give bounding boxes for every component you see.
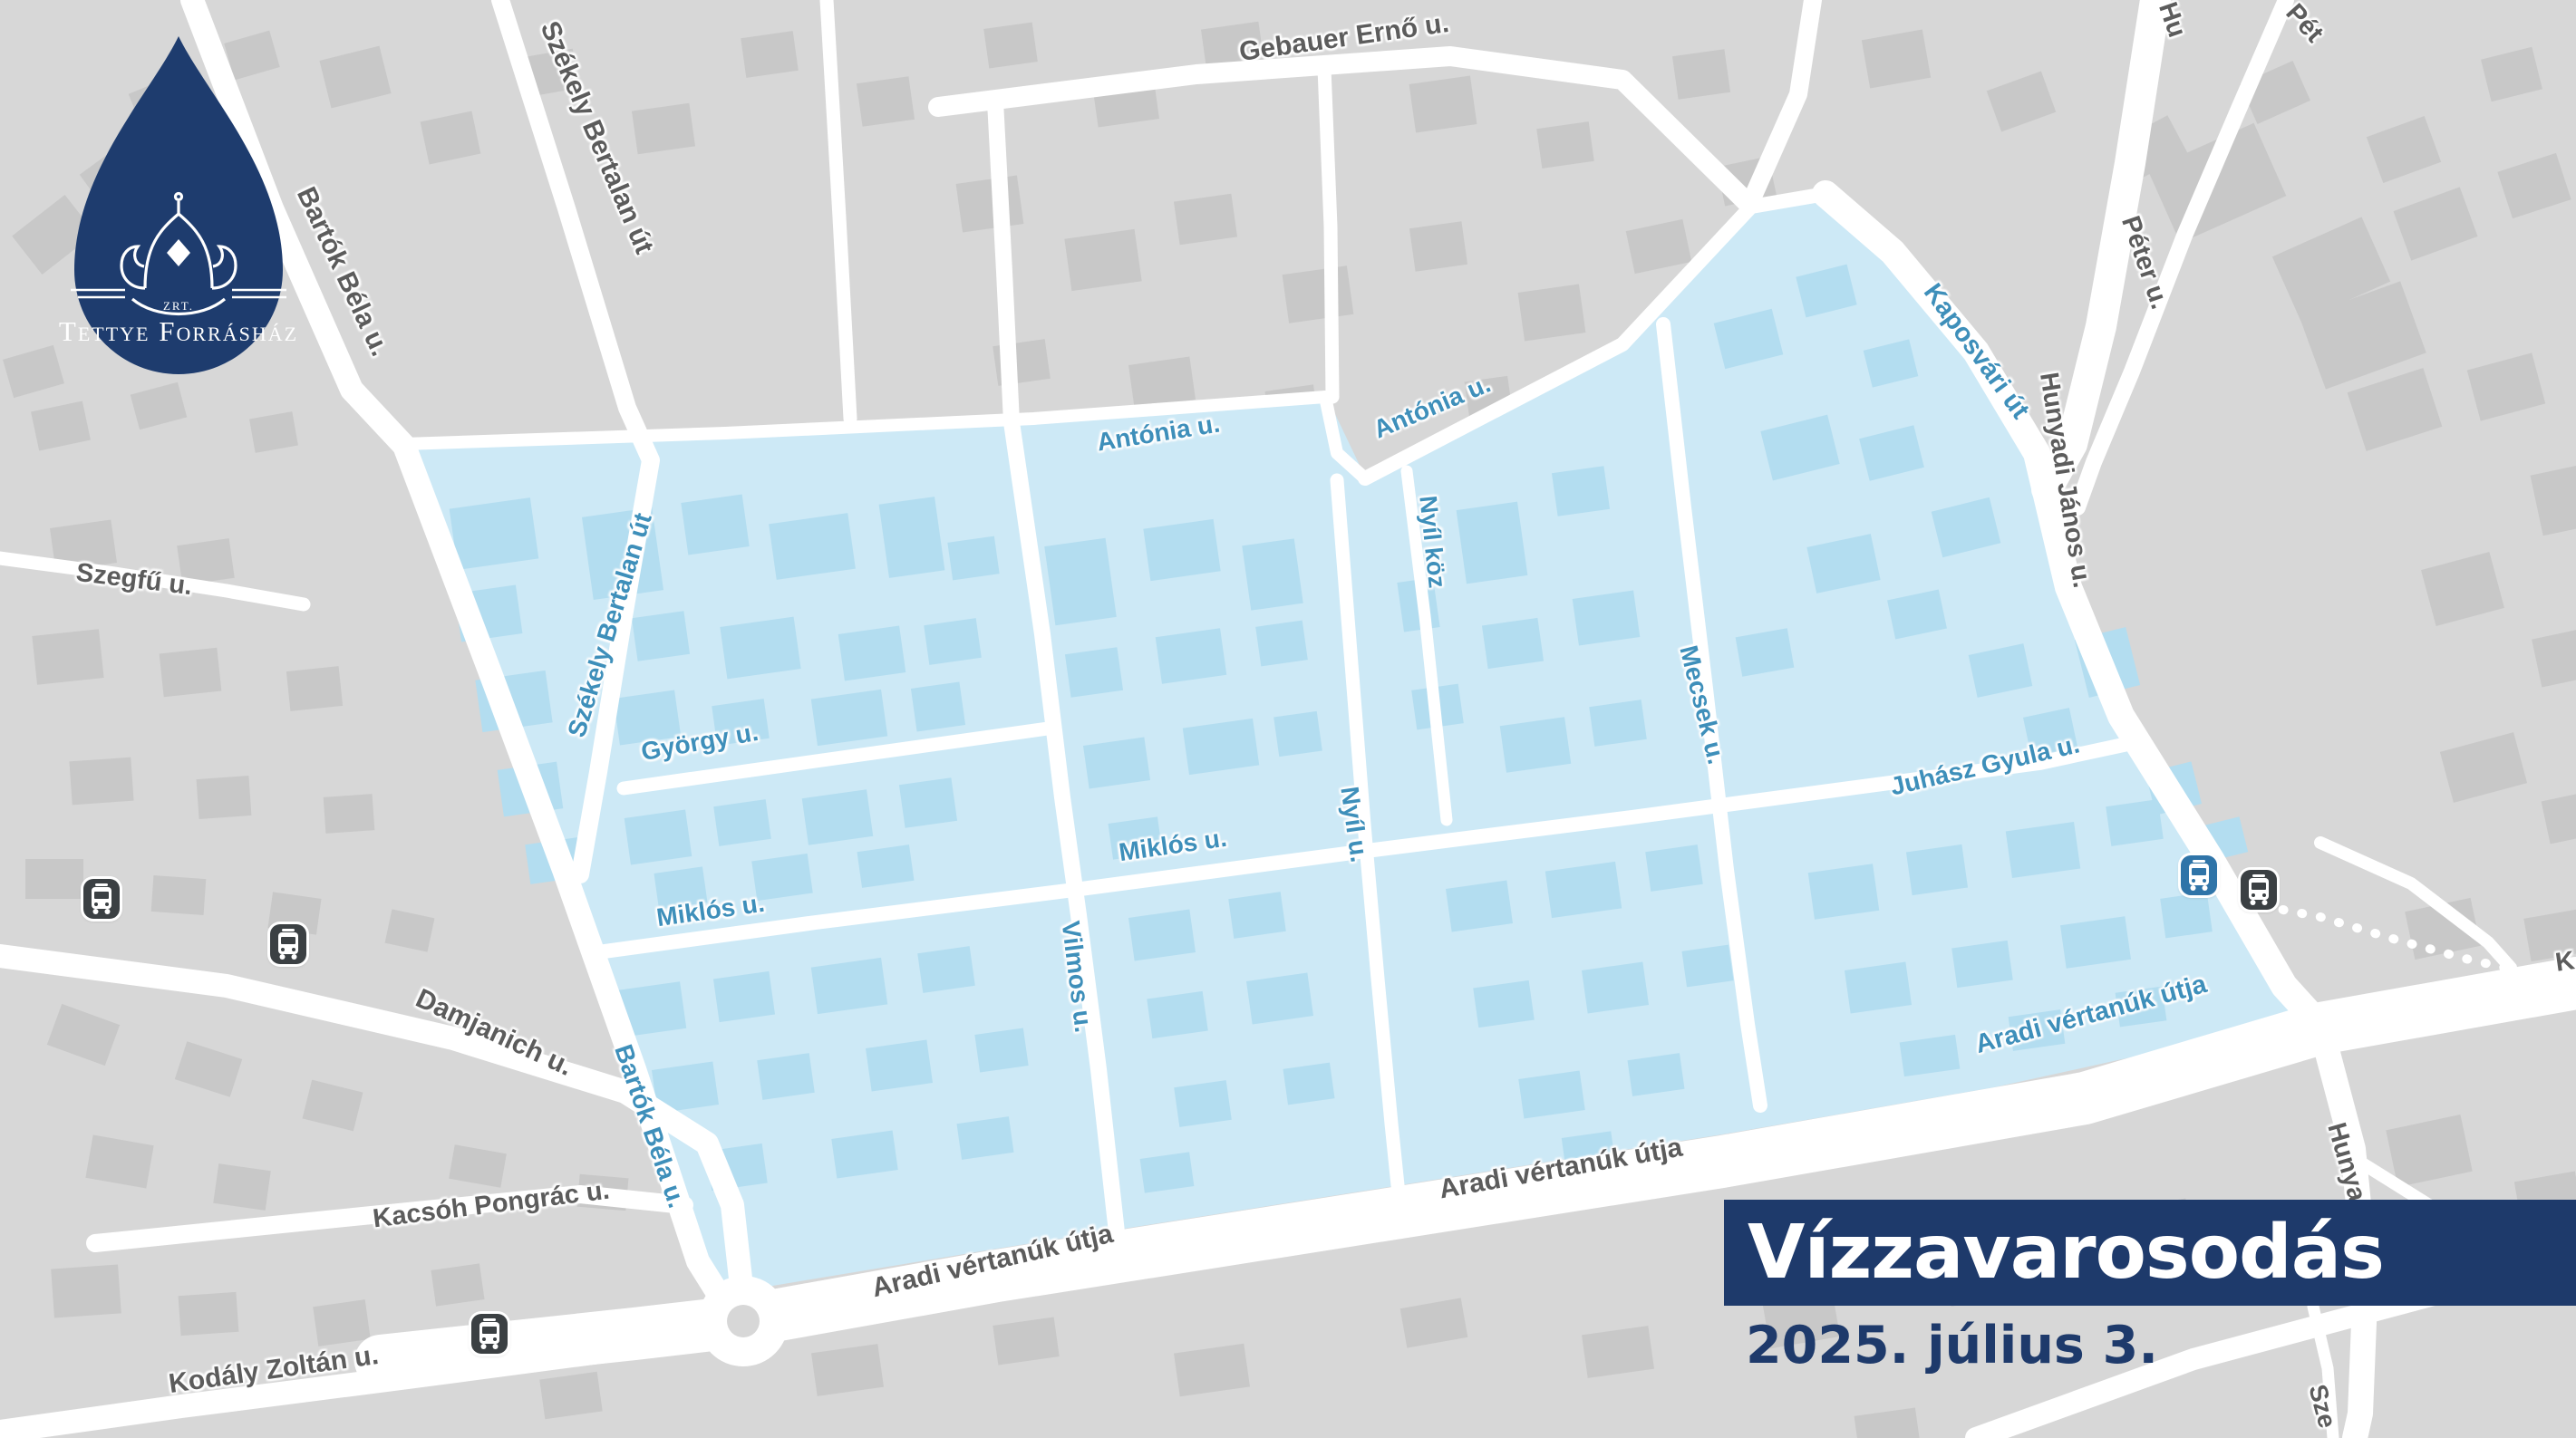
building	[1545, 862, 1622, 918]
building	[160, 648, 222, 697]
building	[319, 46, 391, 109]
building	[1400, 1298, 1468, 1347]
building	[450, 497, 539, 570]
building	[2421, 552, 2504, 626]
building	[1065, 647, 1123, 698]
building	[1064, 229, 1141, 291]
building	[625, 810, 692, 865]
building	[911, 681, 965, 731]
building	[1552, 466, 1610, 516]
building	[1457, 502, 1528, 584]
bus-stop-icon	[2181, 855, 2217, 895]
building	[1083, 738, 1150, 789]
building	[1573, 591, 1641, 646]
building	[2481, 47, 2542, 102]
bus-glyph	[471, 1314, 508, 1354]
building	[1174, 1080, 1232, 1127]
building	[175, 1041, 242, 1097]
building	[1482, 618, 1544, 669]
building	[857, 844, 914, 888]
building	[1951, 941, 2013, 988]
notice-date: 2025. július 3.	[1746, 1316, 2158, 1375]
building	[2348, 368, 2443, 451]
road	[938, 56, 1749, 205]
building	[811, 1344, 884, 1396]
building	[1626, 219, 1692, 274]
building	[1228, 892, 1286, 939]
street-label: K	[2553, 946, 2576, 979]
building	[2393, 187, 2477, 260]
notice-title: Vízzavarosodás	[1724, 1216, 2384, 1290]
building	[2160, 893, 2213, 939]
building	[1518, 1070, 1584, 1118]
building	[179, 1292, 239, 1336]
bus-stop-icon	[2241, 870, 2277, 910]
building	[1283, 265, 1354, 323]
building	[1246, 973, 1313, 1025]
building	[974, 1028, 1028, 1072]
building	[1582, 1326, 1654, 1378]
building	[2440, 732, 2527, 803]
building	[838, 626, 906, 681]
building	[1183, 719, 1259, 775]
building	[1143, 519, 1220, 581]
building	[25, 859, 83, 899]
building	[69, 758, 133, 806]
building	[741, 31, 799, 78]
building	[2006, 822, 2080, 878]
building	[811, 958, 887, 1014]
building	[713, 971, 775, 1022]
building	[1044, 538, 1117, 626]
building	[713, 799, 771, 846]
logo-zrt-label: ZRT.	[47, 299, 310, 314]
building	[632, 611, 690, 661]
building	[2367, 116, 2441, 183]
bus-glyph	[2181, 855, 2217, 895]
building	[1500, 717, 1572, 773]
building	[924, 618, 982, 665]
building	[2386, 1115, 2472, 1187]
bus-stop-icon	[83, 879, 120, 919]
building	[769, 513, 856, 580]
building	[1273, 711, 1322, 757]
building	[324, 794, 375, 834]
building	[1589, 700, 1647, 747]
building	[899, 777, 957, 828]
building	[993, 1317, 1059, 1365]
building	[831, 1130, 897, 1178]
building	[313, 1299, 371, 1346]
building	[857, 76, 915, 127]
building	[431, 1263, 484, 1306]
building	[1409, 76, 1477, 133]
building	[1845, 962, 1912, 1014]
road	[1324, 68, 1332, 397]
building	[632, 103, 695, 154]
building	[2531, 465, 2576, 536]
building	[2060, 916, 2131, 969]
building	[1473, 980, 1535, 1028]
building	[2532, 627, 2576, 688]
bus-stop-icon	[471, 1314, 508, 1354]
building	[879, 497, 945, 578]
building	[1906, 844, 1968, 895]
bus-glyph	[83, 879, 120, 919]
building	[303, 1080, 363, 1132]
building	[385, 909, 435, 951]
building	[956, 1116, 1013, 1160]
building	[421, 111, 481, 164]
road	[827, 0, 850, 419]
building	[449, 1144, 507, 1187]
building	[1536, 121, 1594, 169]
building	[2497, 153, 2571, 218]
building	[1174, 194, 1237, 245]
building	[85, 1134, 153, 1188]
building	[956, 176, 1024, 233]
building	[213, 1163, 271, 1211]
building	[47, 1004, 120, 1066]
building	[1128, 357, 1196, 409]
building	[1808, 864, 1880, 920]
building	[1627, 1053, 1684, 1096]
building	[1156, 628, 1227, 684]
building	[1645, 844, 1703, 892]
building	[1174, 1344, 1250, 1396]
building	[1128, 910, 1196, 961]
building	[1987, 72, 2057, 132]
building	[757, 1053, 815, 1100]
building	[1582, 962, 1649, 1014]
bus-stop-icon	[270, 924, 306, 964]
building	[1255, 621, 1308, 667]
notice-banner: Vízzavarosodás	[1724, 1200, 2576, 1306]
bus-glyph	[270, 924, 306, 964]
building	[51, 1264, 121, 1317]
building	[1446, 881, 1513, 932]
building	[539, 1372, 603, 1419]
roundabout-island	[727, 1305, 760, 1337]
building	[32, 629, 103, 684]
building	[1147, 991, 1208, 1038]
building	[1862, 30, 1931, 89]
building	[811, 690, 887, 746]
building	[1681, 945, 1733, 988]
company-logo	[47, 27, 310, 412]
building	[1518, 285, 1586, 342]
building	[197, 776, 252, 819]
road	[1749, 0, 1813, 205]
building	[681, 495, 749, 555]
building	[917, 946, 975, 993]
building	[802, 789, 874, 845]
building	[1283, 1063, 1334, 1105]
building	[866, 1040, 933, 1092]
building	[151, 875, 207, 915]
logo-company-name: Tettye Forrásház	[47, 315, 310, 348]
building	[983, 22, 1038, 68]
building	[1855, 1407, 1921, 1438]
bus-glyph	[2241, 870, 2277, 910]
building	[286, 666, 343, 711]
building	[947, 536, 999, 581]
map-poster: Gebauer Ernő u.Székely Bertalan útBartók…	[0, 0, 2576, 1438]
building	[720, 617, 800, 680]
building	[1672, 49, 1730, 100]
building	[1140, 1152, 1195, 1192]
building	[2467, 352, 2545, 420]
building	[249, 411, 298, 453]
building	[2542, 790, 2576, 844]
building	[1409, 221, 1467, 272]
building	[1242, 538, 1303, 610]
